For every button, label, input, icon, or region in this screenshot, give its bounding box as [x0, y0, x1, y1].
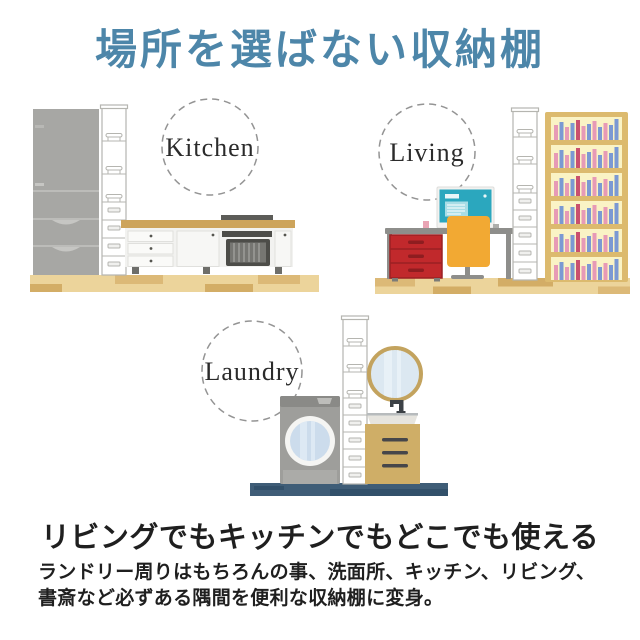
round-mirror-graphic	[369, 348, 421, 400]
slim-storage-tower-graphic	[342, 316, 369, 484]
laundry-label-text: Laundry	[204, 357, 299, 386]
product-banner: 場所を選ばない収納棚	[0, 0, 640, 640]
kitchen-scene: Kitchen	[25, 95, 320, 300]
washing-machine-graphic	[280, 396, 340, 484]
page-title: 場所を選ばない収納棚	[0, 16, 640, 77]
living-label-text: Living	[389, 138, 464, 167]
faucet-icon	[390, 400, 406, 414]
living-scene: Living	[348, 95, 630, 300]
red-drawer-unit-graphic	[390, 235, 442, 282]
laundry-scene: Laundry	[180, 310, 470, 510]
footer-description-line1: ランドリー周りはもちろんの事、洗面所、キッチン、リビング、	[38, 562, 595, 583]
kitchen-counter-graphic	[121, 215, 295, 274]
living-illustration: Living	[348, 95, 630, 300]
slim-storage-tower-graphic	[101, 105, 128, 275]
footer-description: ランドリー周りはもちろんの事、洗面所、キッチン、リビング、書斎など必ずある隅間を…	[38, 560, 618, 612]
laundry-floor-graphic	[250, 483, 448, 496]
kitchen-label-text: Kitchen	[165, 133, 254, 162]
office-chair-graphic	[447, 216, 490, 279]
footer-heading: リビングでもキッチンでもどこでも使える	[0, 514, 640, 556]
vanity-sink-graphic	[365, 400, 420, 484]
kitchen-illustration: Kitchen	[25, 95, 320, 300]
footer-description-line2: 書斎など必ずある隅間を便利な収納棚に変身。	[38, 588, 443, 609]
built-in-oven-graphic	[222, 231, 272, 266]
refrigerator-graphic	[33, 109, 99, 275]
slim-storage-tower-graphic	[512, 108, 539, 280]
counter-feet	[132, 267, 282, 274]
living-label-circle: Living	[379, 104, 475, 200]
wood-floor-graphic	[30, 275, 319, 292]
desk-item-graphic	[493, 224, 499, 228]
cup-graphic	[423, 221, 429, 228]
kitchen-label-circle: Kitchen	[162, 99, 258, 195]
laundry-illustration: Laundry	[180, 310, 470, 510]
bookshelf-graphic	[545, 112, 628, 282]
